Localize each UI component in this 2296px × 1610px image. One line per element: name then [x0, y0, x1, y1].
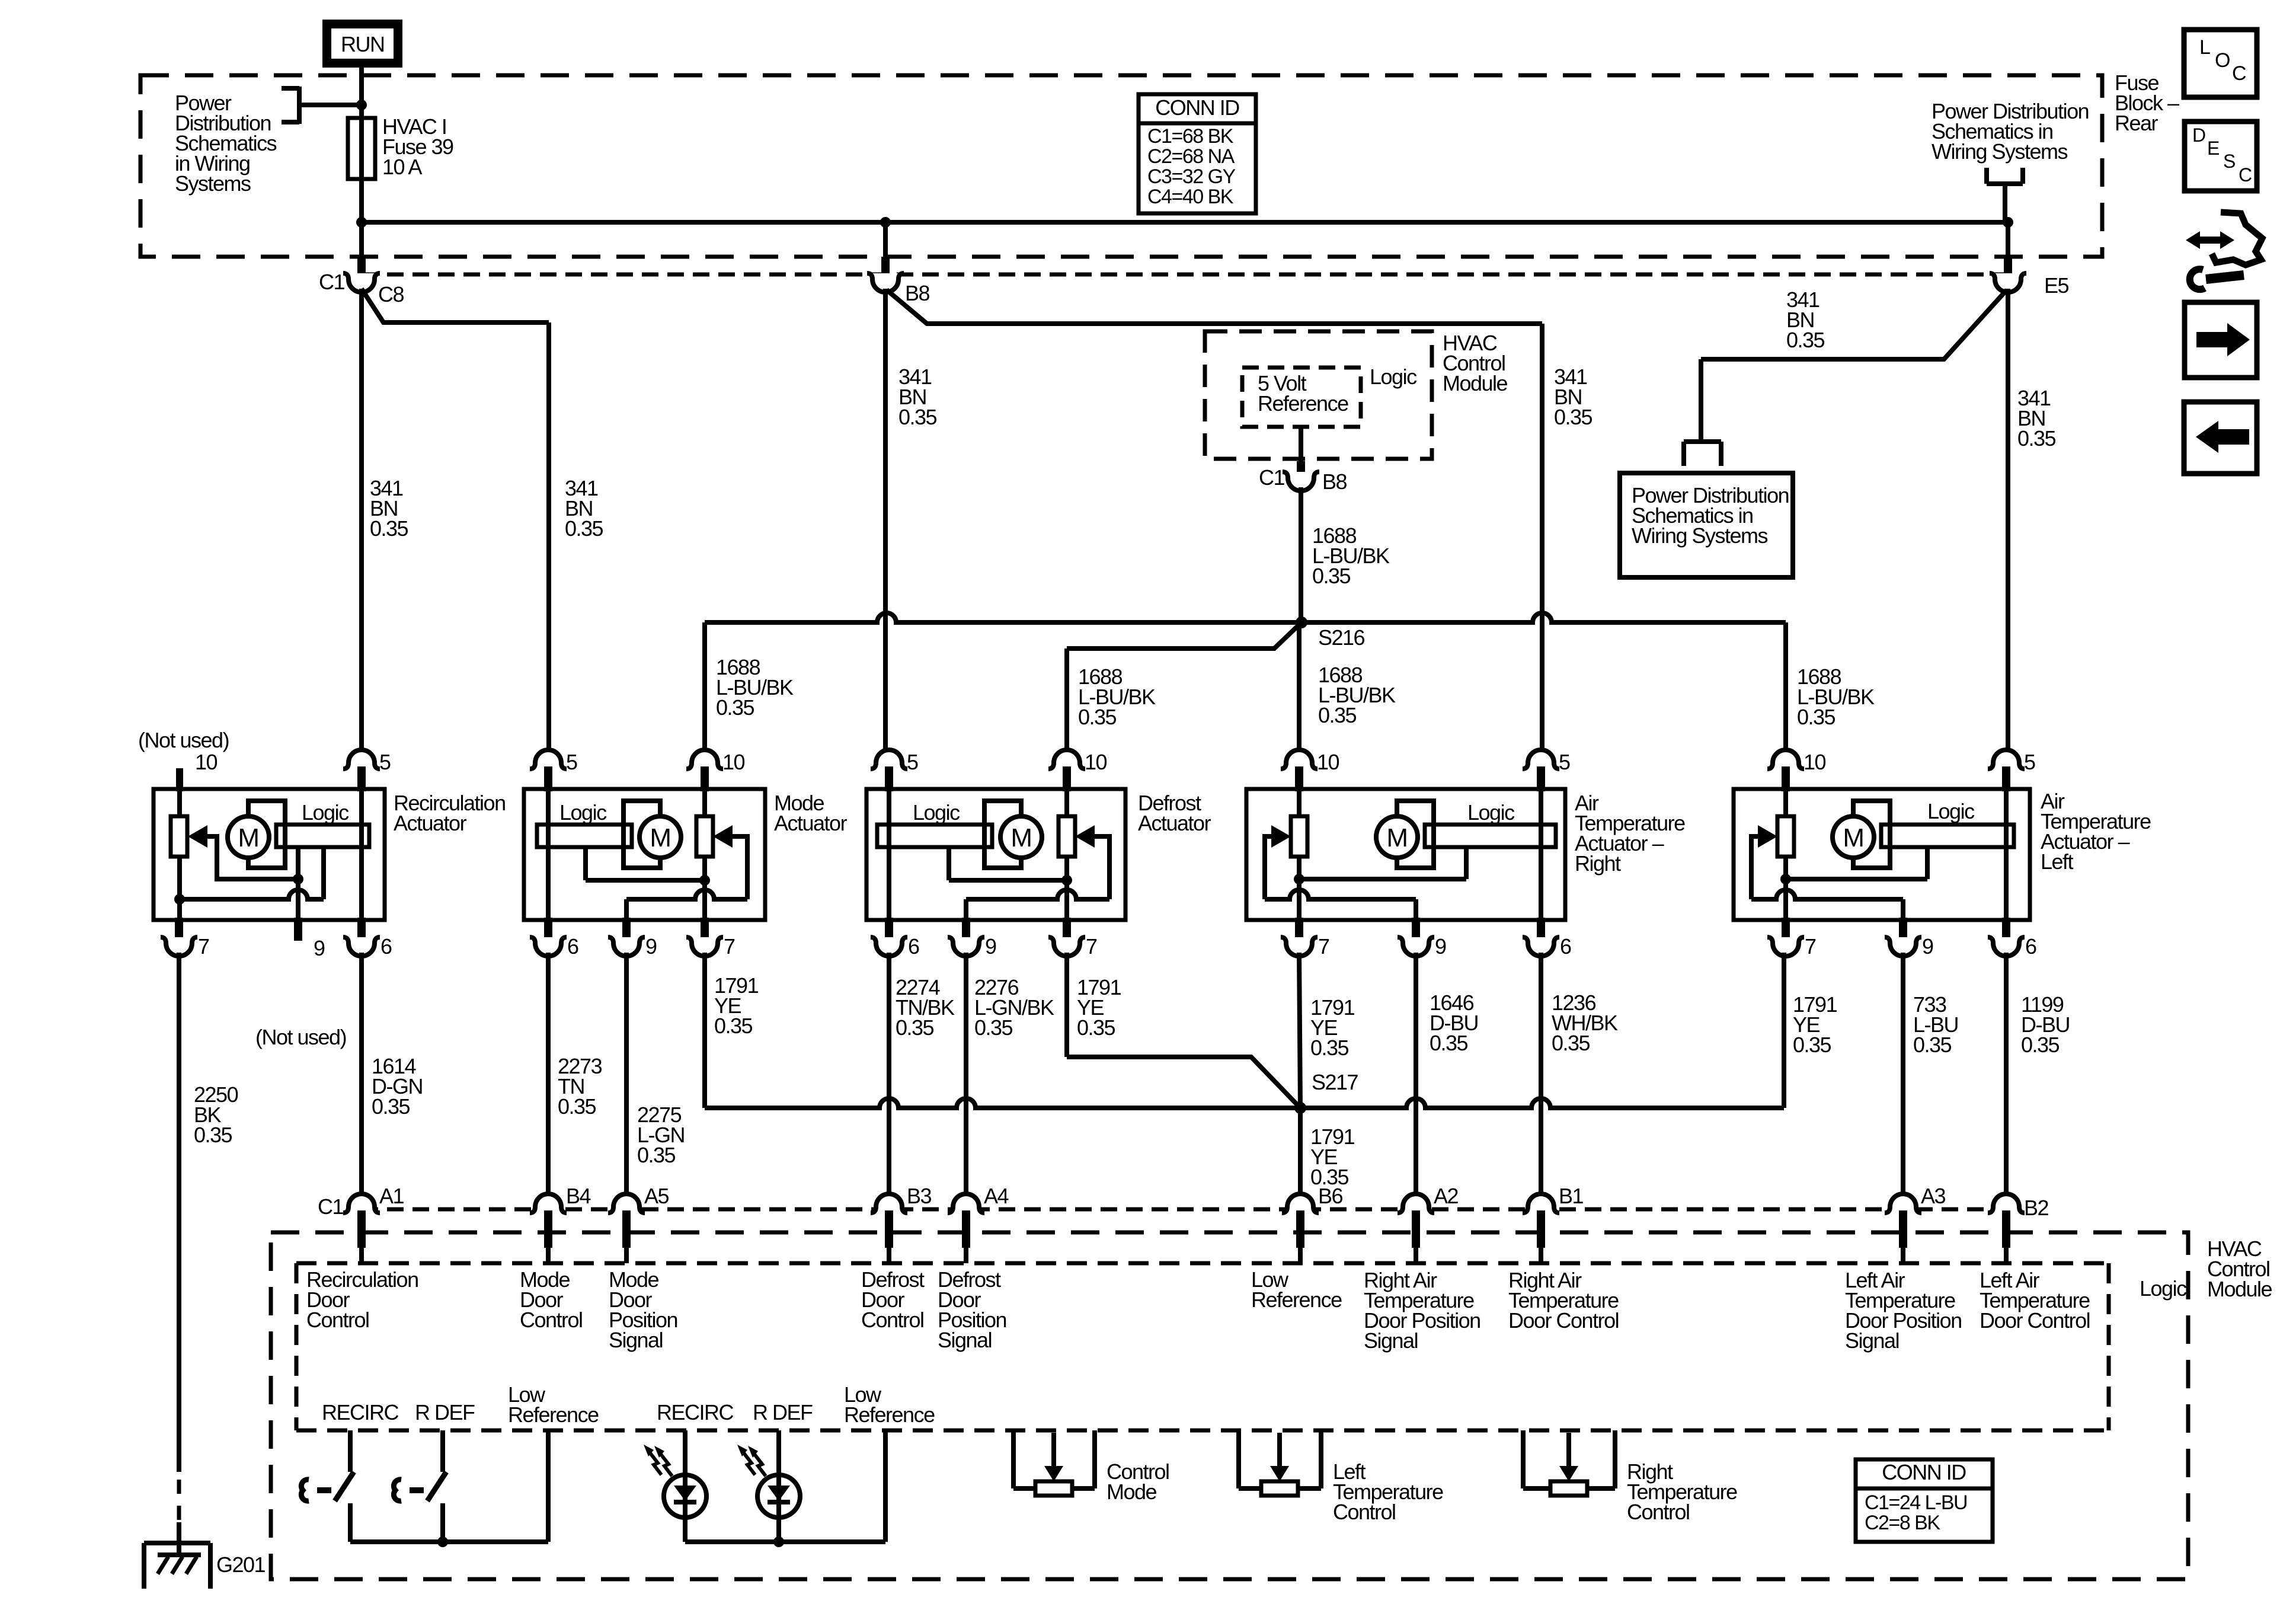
svg-text:Wiring Systems: Wiring Systems: [1632, 523, 1768, 548]
svg-text:7: 7: [198, 934, 209, 959]
svg-text:6: 6: [908, 934, 919, 959]
svg-text:0.35: 0.35: [370, 516, 408, 541]
svg-text:C1: C1: [318, 1194, 343, 1219]
svg-text:0.35: 0.35: [1430, 1031, 1468, 1055]
svg-text:0.35: 0.35: [558, 1094, 596, 1119]
svg-text:0.35: 0.35: [1913, 1033, 1952, 1057]
svg-text:Signal: Signal: [1845, 1328, 1899, 1353]
svg-text:Right: Right: [1575, 851, 1621, 876]
svg-text:A1: A1: [379, 1184, 404, 1208]
svg-text:C1=68 BK: C1=68 BK: [1147, 125, 1234, 148]
svg-text:Door Control: Door Control: [1508, 1308, 1619, 1333]
svg-text:C: C: [2239, 164, 2252, 186]
svg-text:Rear: Rear: [2115, 111, 2159, 135]
svg-text:10: 10: [722, 750, 745, 774]
svg-text:10: 10: [195, 750, 218, 774]
svg-text:E: E: [2207, 138, 2219, 159]
svg-text:9: 9: [314, 936, 325, 960]
svg-text:Left: Left: [2041, 849, 2074, 874]
svg-text:6: 6: [380, 934, 392, 959]
svg-text:Systems: Systems: [175, 171, 251, 196]
svg-text:Actuator: Actuator: [394, 811, 467, 835]
svg-text:(Not used): (Not used): [138, 728, 229, 752]
svg-text:M: M: [1843, 823, 1863, 852]
svg-text:Control: Control: [520, 1308, 583, 1332]
svg-text:B4: B4: [566, 1184, 591, 1208]
svg-text:R DEF: R DEF: [415, 1400, 475, 1424]
svg-text:9: 9: [1435, 934, 1446, 959]
svg-text:10: 10: [1803, 750, 1826, 774]
svg-text:RUN: RUN: [341, 32, 385, 56]
svg-text:C1: C1: [1259, 465, 1284, 490]
svg-text:C2=68 NA: C2=68 NA: [1147, 145, 1235, 168]
svg-text:CONN ID: CONN ID: [1882, 1460, 1966, 1484]
svg-text:0.35: 0.35: [1793, 1033, 1831, 1057]
svg-text:0.35: 0.35: [372, 1094, 410, 1119]
svg-text:Control: Control: [1627, 1500, 1690, 1524]
svg-text:A4: A4: [984, 1184, 1009, 1208]
svg-text:C1: C1: [319, 270, 344, 294]
svg-text:Logic: Logic: [2140, 1276, 2187, 1301]
svg-text:M: M: [650, 823, 670, 852]
svg-text:0.35: 0.35: [896, 1015, 934, 1040]
svg-text:E5: E5: [2044, 273, 2069, 298]
svg-text:7: 7: [1805, 934, 1816, 959]
svg-text:Reference: Reference: [1258, 391, 1348, 416]
svg-text:10 A: 10 A: [382, 155, 423, 179]
svg-text:0.35: 0.35: [1786, 328, 1825, 352]
svg-text:M: M: [1011, 823, 1031, 852]
svg-text:7: 7: [724, 934, 735, 959]
svg-text:S216: S216: [1318, 625, 1365, 650]
svg-text:B8: B8: [905, 281, 930, 305]
svg-text:Actuator: Actuator: [1138, 811, 1211, 835]
svg-text:L: L: [2199, 36, 2210, 59]
svg-text:0.35: 0.35: [898, 405, 937, 429]
svg-text:A2: A2: [1434, 1184, 1459, 1208]
svg-text:5: 5: [566, 750, 577, 774]
svg-text:0.35: 0.35: [1078, 705, 1117, 729]
svg-text:Control: Control: [861, 1308, 924, 1332]
svg-text:RECIRC: RECIRC: [322, 1400, 399, 1424]
svg-text:Module: Module: [2207, 1277, 2272, 1301]
svg-text:0.35: 0.35: [2021, 1033, 2060, 1057]
svg-text:B2: B2: [2024, 1196, 2049, 1220]
svg-text:5: 5: [2024, 750, 2035, 774]
svg-text:5: 5: [379, 750, 391, 774]
svg-text:RECIRC: RECIRC: [657, 1400, 734, 1424]
svg-text:M: M: [238, 823, 258, 852]
svg-text:C4=40 BK: C4=40 BK: [1147, 186, 1234, 208]
svg-text:0.35: 0.35: [1077, 1015, 1115, 1040]
svg-text:Reference: Reference: [844, 1403, 935, 1427]
svg-text:G201: G201: [216, 1552, 266, 1577]
svg-text:Reference: Reference: [508, 1403, 599, 1427]
svg-text:B3: B3: [907, 1184, 932, 1208]
svg-text:7: 7: [1086, 934, 1097, 959]
svg-text:6: 6: [1560, 934, 1571, 959]
svg-text:10: 10: [1317, 750, 1339, 774]
svg-text:Logic: Logic: [559, 800, 607, 825]
svg-text:9: 9: [645, 934, 657, 959]
svg-text:Mode: Mode: [1107, 1480, 1157, 1504]
svg-text:9: 9: [1922, 934, 1933, 959]
svg-text:(Not used): (Not used): [255, 1025, 346, 1049]
svg-text:5: 5: [1559, 750, 1570, 774]
svg-text:0.35: 0.35: [974, 1015, 1013, 1040]
svg-text:S: S: [2223, 151, 2235, 172]
svg-text:Signal: Signal: [1364, 1328, 1418, 1353]
svg-text:Door Control: Door Control: [1980, 1308, 2090, 1333]
svg-text:Actuator: Actuator: [774, 811, 848, 835]
svg-text:0.35: 0.35: [1552, 1031, 1590, 1055]
svg-text:9: 9: [985, 934, 996, 959]
svg-text:Module: Module: [1443, 371, 1508, 395]
svg-text:0.35: 0.35: [1318, 703, 1357, 727]
svg-text:0.35: 0.35: [1554, 405, 1593, 429]
svg-text:0.35: 0.35: [716, 695, 754, 720]
svg-text:6: 6: [567, 934, 578, 959]
svg-text:Logic: Logic: [1370, 365, 1417, 389]
svg-text:B1: B1: [1559, 1184, 1584, 1208]
svg-text:C8: C8: [378, 282, 404, 306]
svg-text:7: 7: [1318, 934, 1329, 959]
svg-text:10: 10: [1085, 750, 1107, 774]
svg-text:5: 5: [907, 750, 918, 774]
svg-text:CONN ID: CONN ID: [1155, 95, 1239, 120]
svg-text:Signal: Signal: [609, 1328, 663, 1352]
svg-text:C3=32 GY: C3=32 GY: [1147, 165, 1236, 188]
svg-text:0.35: 0.35: [1312, 564, 1351, 588]
svg-text:0.35: 0.35: [565, 516, 603, 541]
svg-text:6: 6: [2025, 934, 2036, 959]
svg-text:M: M: [1386, 823, 1407, 852]
svg-text:O: O: [2215, 49, 2230, 72]
svg-text:0.35: 0.35: [194, 1123, 232, 1147]
svg-text:C: C: [2232, 62, 2246, 85]
svg-text:Logic: Logic: [302, 800, 349, 825]
svg-text:Logic: Logic: [1467, 800, 1515, 825]
svg-text:0.35: 0.35: [637, 1143, 676, 1167]
svg-text:0.35: 0.35: [714, 1014, 753, 1038]
svg-text:Reference: Reference: [1251, 1288, 1342, 1312]
svg-text:Wiring Systems: Wiring Systems: [1932, 139, 2068, 164]
svg-text:C1=24 L-BU: C1=24 L-BU: [1865, 1491, 1967, 1514]
svg-text:Logic: Logic: [913, 800, 960, 825]
svg-text:A3: A3: [1921, 1184, 1946, 1208]
svg-text:0.35: 0.35: [1797, 705, 1835, 729]
svg-text:R DEF: R DEF: [753, 1400, 813, 1424]
svg-text:S217: S217: [1312, 1070, 1358, 1094]
svg-text:D: D: [2192, 124, 2205, 146]
svg-text:Signal: Signal: [938, 1328, 992, 1352]
svg-text:0.35: 0.35: [1310, 1036, 1349, 1060]
svg-text:C2=8 BK: C2=8 BK: [1865, 1512, 1940, 1534]
svg-text:B6: B6: [1318, 1184, 1343, 1208]
svg-text:Logic: Logic: [1927, 799, 1975, 823]
svg-text:0.35: 0.35: [2017, 426, 2056, 451]
svg-text:Control: Control: [1333, 1500, 1396, 1524]
svg-text:B8: B8: [1322, 469, 1347, 494]
svg-text:A5: A5: [644, 1184, 669, 1208]
svg-text:Control: Control: [306, 1308, 369, 1332]
